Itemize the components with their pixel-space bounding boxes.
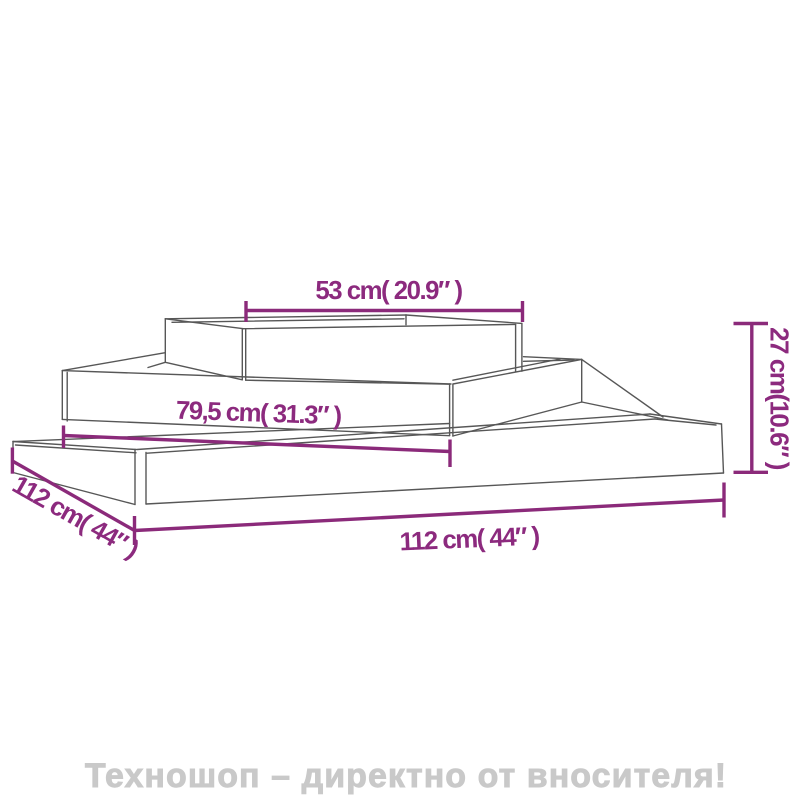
- svg-text:27 cm(10.6″ ): 27 cm(10.6″ ): [765, 327, 795, 470]
- svg-text:Техношоп – директно от вносите: Техношоп – директно от вносителя!: [85, 757, 727, 795]
- svg-text:79,5 cm( 31.3″ ): 79,5 cm( 31.3″ ): [175, 397, 342, 431]
- svg-text:53 cm( 20.9″ ): 53 cm( 20.9″ ): [315, 277, 462, 305]
